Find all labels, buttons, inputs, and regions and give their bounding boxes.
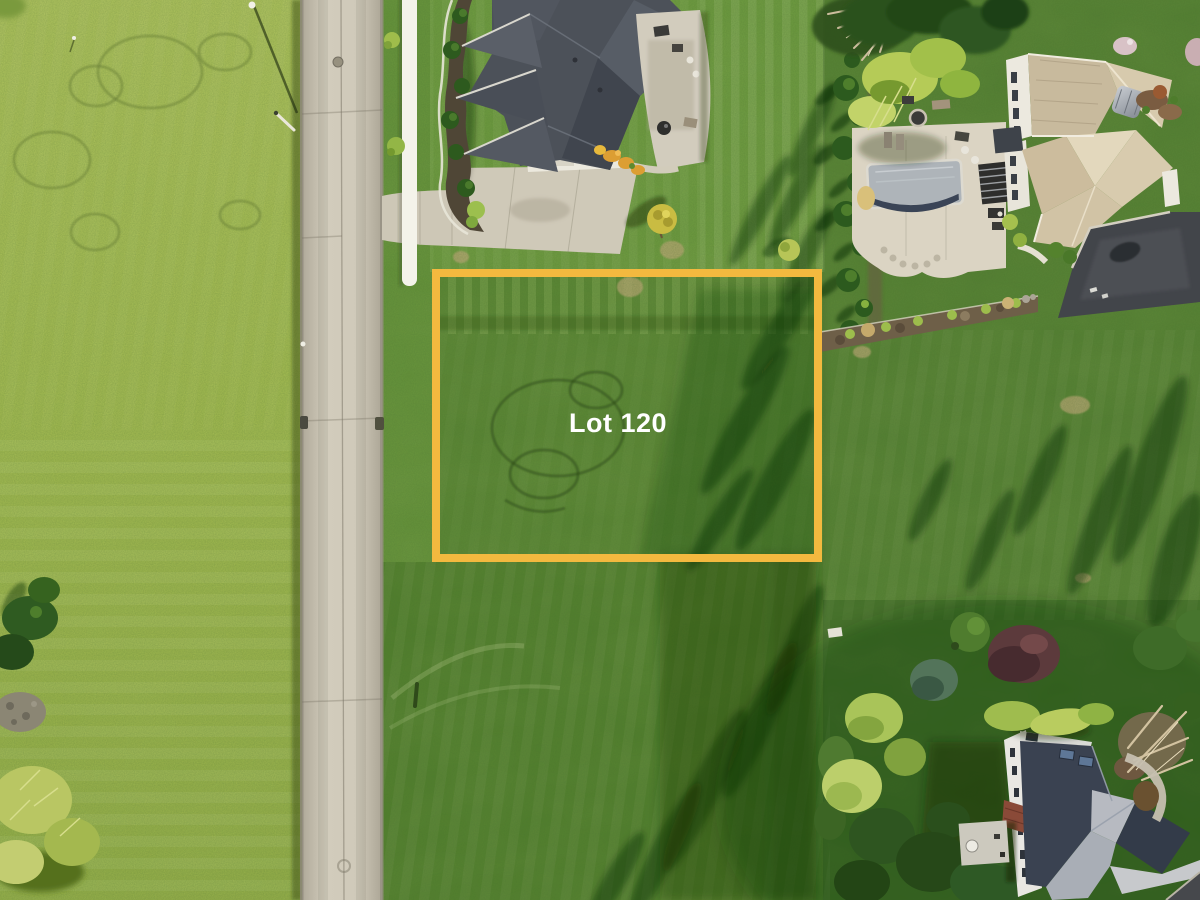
road <box>292 0 384 900</box>
skylight <box>1059 749 1074 760</box>
fire-pit <box>910 110 926 126</box>
grill <box>657 121 671 135</box>
patio-furniture <box>653 25 669 37</box>
small-shrub <box>951 642 959 650</box>
curb-marker <box>301 342 306 347</box>
aerial-photo: Lot 120 <box>0 0 1200 900</box>
storm-drain-west <box>300 416 308 429</box>
road-curb-east <box>380 0 384 900</box>
storm-drain-east <box>375 417 384 430</box>
blossom-tree <box>1113 37 1137 55</box>
lawn-marker <box>72 36 76 40</box>
street-light-head <box>249 2 256 9</box>
manhole-cover <box>333 57 343 67</box>
dark-awning <box>993 127 1023 154</box>
skylight <box>1078 756 1093 767</box>
road-curb-west <box>300 0 304 900</box>
satellite-dish <box>966 840 978 852</box>
wheat-grass-tuft <box>857 186 875 210</box>
lot-label: Lot 120 <box>569 408 667 438</box>
aerial-scene: Lot 120 <box>0 0 1200 900</box>
field-stake <box>415 684 417 706</box>
